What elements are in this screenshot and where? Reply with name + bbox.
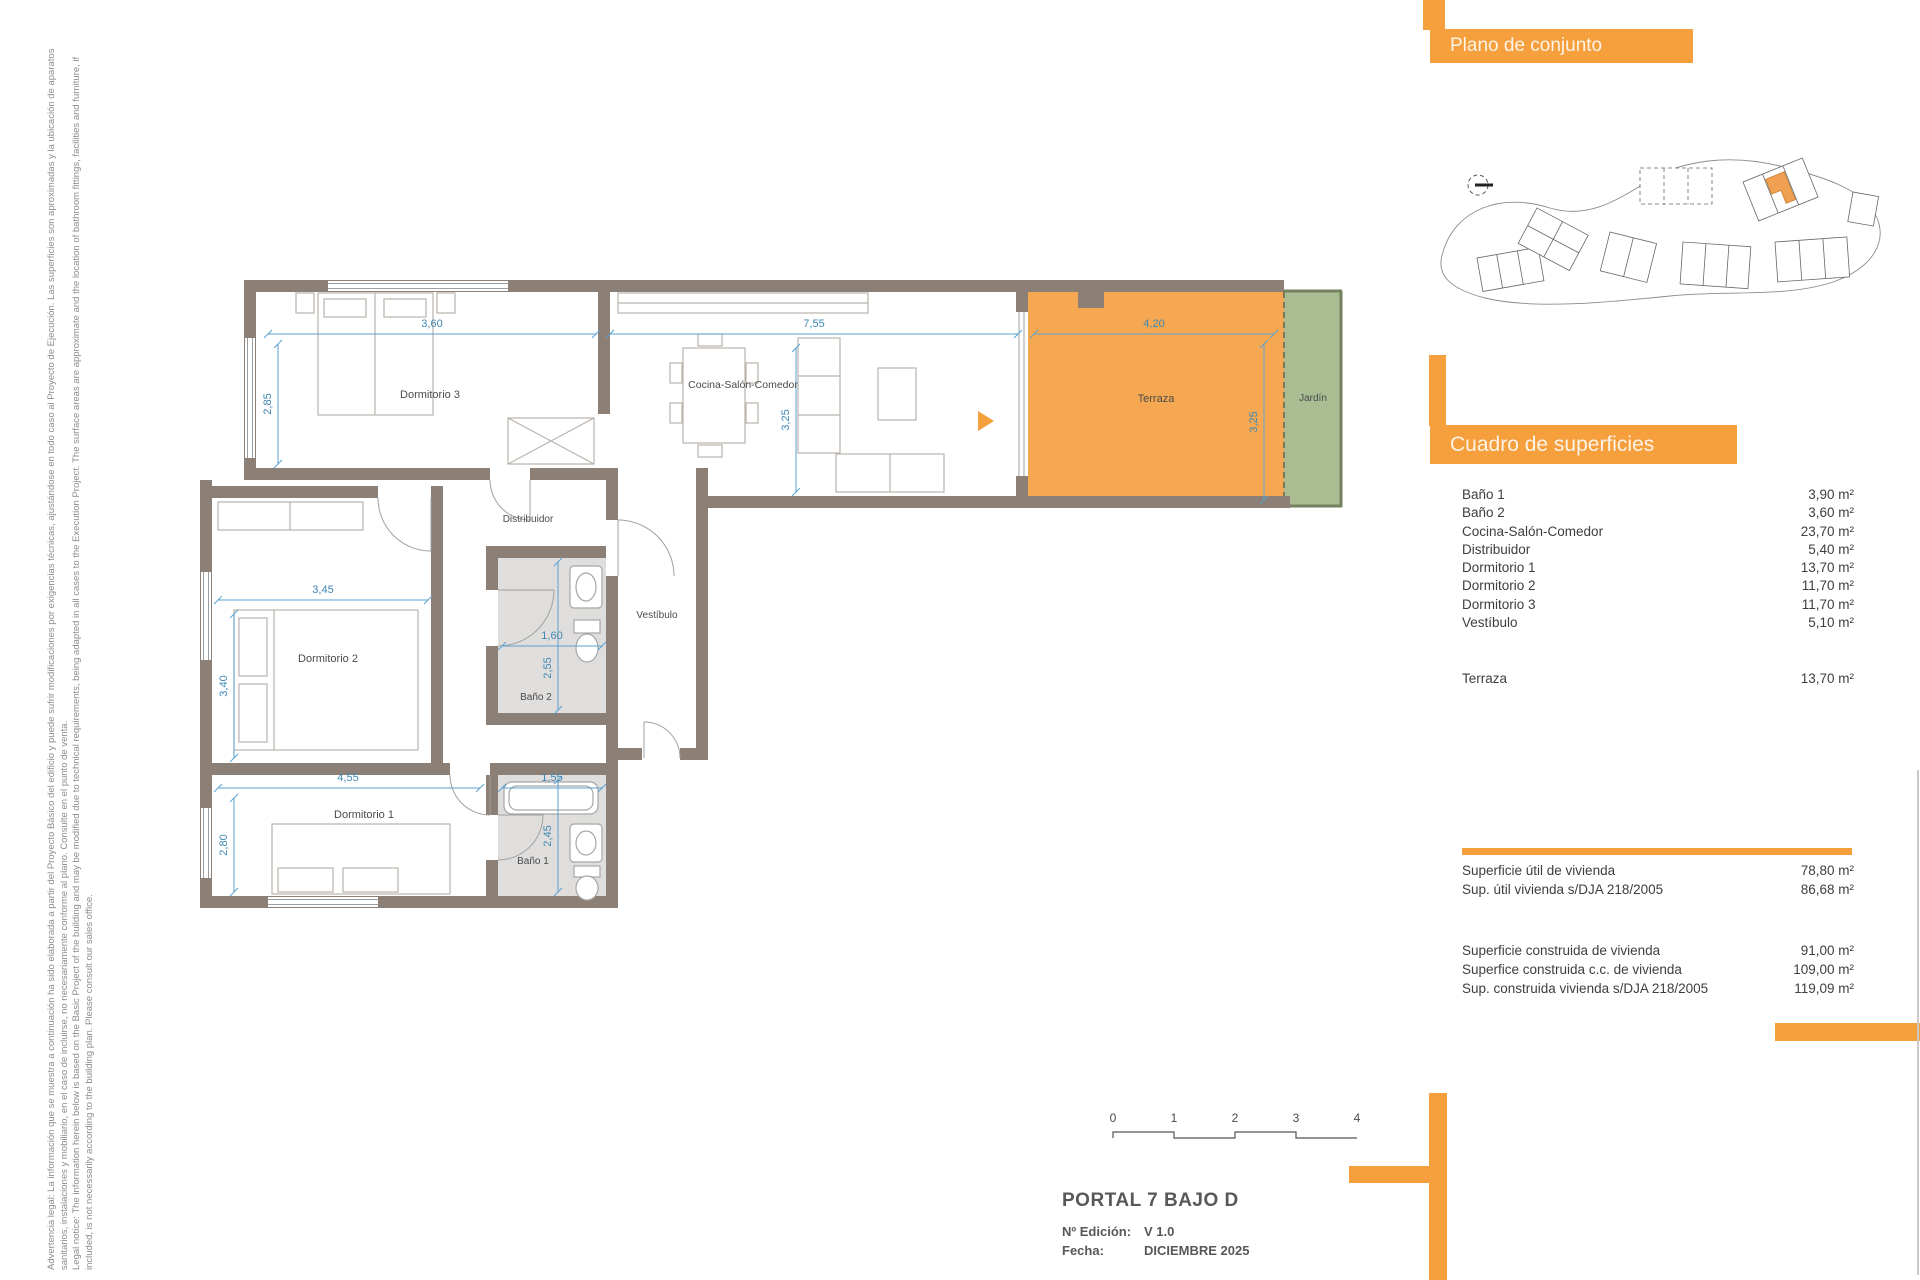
disclaimer-line-en-1: Legal notice: The information herein bel…	[71, 8, 84, 1270]
dim-dorm2-width: 3,45	[312, 584, 333, 596]
decoration-right-edge-line	[1917, 770, 1919, 1275]
row-value: 23,70 m²	[1801, 523, 1854, 541]
row-value: 13,70 m²	[1801, 559, 1854, 577]
entrance-marker-icon	[978, 411, 994, 431]
row-label: Baño 1	[1462, 486, 1505, 504]
site-buildings	[1477, 158, 1879, 291]
building-cluster	[1640, 168, 1712, 204]
table-row: Sup. útil vivienda s/DJA 218/2005 86,68 …	[1462, 880, 1854, 899]
building-cluster	[1680, 242, 1751, 289]
closet-dorm3-icon	[508, 418, 594, 464]
scale-bar-line	[1113, 1132, 1357, 1138]
row-value: 5,10 m²	[1808, 614, 1854, 632]
disclaimer-line-es-2: sanitarios, instalaciones y mobiliario, …	[59, 8, 72, 1270]
scale-tick-4: 4	[1354, 1111, 1361, 1125]
surfaces-table-terraza: Terraza 13,70 m²	[1462, 670, 1854, 688]
dim-salon-width: 7,55	[803, 318, 824, 330]
surfaces-panel-title-text: Cuadro de superficies	[1450, 433, 1654, 457]
edition-row: Nº Edición: V 1.0	[1062, 1222, 1382, 1241]
row-value: 13,70 m²	[1801, 670, 1854, 688]
table-row: Superficie útil de vivienda 78,80 m²	[1462, 861, 1854, 880]
toilet-bano2-icon	[574, 620, 600, 662]
room-label-dormitorio1: Dormitorio 1	[334, 809, 394, 821]
table-row: Vestíbulo 5,10 m²	[1462, 614, 1854, 632]
room-label-dormitorio2: Dormitorio 2	[298, 653, 358, 665]
dim-dorm1-height: 2,80	[218, 834, 230, 855]
row-value: 86,68 m²	[1801, 880, 1854, 899]
wardrobe-dorm2-icon	[218, 502, 363, 530]
site-plan	[1425, 140, 1905, 315]
totals-divider-bar	[1462, 848, 1852, 855]
table-row: Distribuidor 5,40 m²	[1462, 541, 1854, 559]
date-label: Fecha:	[1062, 1241, 1144, 1260]
row-label: Terraza	[1462, 670, 1507, 688]
dim-terraza-height: 3,25	[1248, 411, 1260, 432]
row-value: 5,40 m²	[1808, 541, 1854, 559]
surfaces-panel-accent-bar	[1429, 355, 1446, 426]
room-label-terraza: Terraza	[1138, 393, 1176, 405]
room-label-dormitorio3: Dormitorio 3	[400, 389, 460, 401]
bed-dorm1-icon	[272, 824, 450, 894]
row-label: Superficie construida de vivienda	[1462, 941, 1660, 960]
dim-bano1-width: 1,55	[541, 772, 562, 784]
scale-tick-0: 0	[1110, 1111, 1117, 1125]
dim-dorm2-height: 3,40	[218, 675, 230, 696]
row-value: 11,70 m²	[1802, 577, 1854, 595]
scale-bar: 0 1 2 3 4	[1100, 1108, 1380, 1148]
row-label: Distribuidor	[1462, 541, 1530, 559]
bathtub-bano1-icon	[504, 782, 598, 814]
table-row: Sup. construida vivienda s/DJA 218/2005 …	[1462, 979, 1854, 998]
tv-unit-icon	[878, 368, 916, 420]
edition-label: Nº Edición:	[1062, 1222, 1144, 1241]
disclaimer-line-es-1: Advertencia legal: La información que se…	[46, 8, 59, 1270]
disclaimer-line-en-2: included, is not necessarily according t…	[84, 8, 97, 1270]
table-row: Baño 2 3,60 m²	[1462, 504, 1854, 522]
table-row: Baño 1 3,90 m²	[1462, 486, 1854, 504]
room-label-cocina: Cocina-Salón-Comedor	[688, 379, 798, 391]
table-row: Superficie construida de vivienda 91,00 …	[1462, 941, 1854, 960]
scale-tick-1: 1	[1171, 1111, 1178, 1125]
edition-value: V 1.0	[1144, 1222, 1174, 1241]
floor-fills	[498, 292, 1342, 896]
dim-salon-height: 3,25	[780, 409, 792, 430]
row-label: Baño 2	[1462, 504, 1505, 522]
title-block: PORTAL 7 BAJO D Nº Edición: V 1.0 Fecha:…	[1062, 1190, 1382, 1260]
building-cluster	[1848, 192, 1879, 226]
building-cluster	[1775, 237, 1850, 282]
table-row: Dormitorio 3 11,70 m²	[1462, 596, 1854, 614]
decoration-bottom-bar	[1775, 1023, 1920, 1041]
table-row: Cocina-Salón-Comedor 23,70 m²	[1462, 523, 1854, 541]
table-row: Dormitorio 2 11,70 m²	[1462, 577, 1854, 595]
row-label: Dormitorio 2	[1462, 577, 1536, 595]
bed-dorm2-icon	[234, 610, 418, 750]
kitchen-counter-icon	[618, 293, 868, 313]
room-label-jardin: Jardín	[1299, 393, 1327, 404]
row-value: 109,00 m²	[1793, 960, 1854, 979]
row-label: Superficie útil de vivienda	[1462, 861, 1615, 880]
dim-dorm3-height: 2,85	[262, 393, 274, 414]
row-value: 78,80 m²	[1801, 861, 1854, 880]
table-row: Terraza 13,70 m²	[1462, 670, 1854, 688]
decoration-vertical-bar	[1429, 1093, 1447, 1280]
table-row: Superfice construida c.c. de vivienda 10…	[1462, 960, 1854, 979]
row-label: Vestíbulo	[1462, 614, 1518, 632]
sink-bano2-icon	[570, 566, 602, 608]
dim-bano2-height: 2,55	[542, 657, 554, 678]
decoration-horizontal-arm	[1349, 1166, 1429, 1183]
row-label: Superfice construida c.c. de vivienda	[1462, 960, 1682, 979]
toilet-bano1-icon	[574, 866, 600, 900]
totals-useful-area: Superficie útil de vivienda 78,80 m² Sup…	[1462, 861, 1854, 899]
sink-bano1-icon	[570, 824, 602, 862]
surfaces-panel-title: Cuadro de superficies	[1430, 425, 1737, 464]
site-panel-title: Plano de conjunto	[1430, 29, 1693, 63]
legal-disclaimer: Advertencia legal: La información que se…	[46, 8, 102, 1272]
totals-built-area: Superficie construida de vivienda 91,00 …	[1462, 941, 1854, 998]
row-value: 11,70 m²	[1802, 596, 1854, 614]
date-row: Fecha: DICIEMBRE 2025	[1062, 1241, 1382, 1260]
row-label: Sup. construida vivienda s/DJA 218/2005	[1462, 979, 1708, 998]
row-label: Sup. útil vivienda s/DJA 218/2005	[1462, 880, 1663, 899]
site-panel-title-text: Plano de conjunto	[1450, 35, 1602, 57]
sofa-icon	[798, 338, 840, 453]
room-label-vestibulo: Vestíbulo	[636, 610, 678, 621]
plan-title: PORTAL 7 BAJO D	[1062, 1190, 1382, 1212]
dim-dorm1-width: 4,55	[337, 772, 358, 784]
building-cluster	[1600, 232, 1656, 282]
row-value: 3,90 m²	[1808, 486, 1854, 504]
building-cluster	[1477, 247, 1544, 291]
dim-bano2-width: 1,60	[541, 630, 562, 642]
scale-tick-3: 3	[1293, 1111, 1300, 1125]
floor-plan: 3,60 7,55 4,20 3,45 1,60 4,55 1,55 2,85 …	[178, 268, 1358, 916]
row-value: 91,00 m²	[1801, 941, 1854, 960]
room-label-bano1: Baño 1	[517, 856, 549, 867]
row-label: Dormitorio 1	[1462, 559, 1536, 577]
row-value: 119,09 m²	[1794, 979, 1854, 998]
dining-table-icon	[670, 334, 758, 457]
row-label: Dormitorio 3	[1462, 596, 1536, 614]
row-value: 3,60 m²	[1808, 504, 1854, 522]
scale-bar-ticks: 0 1 2 3 4	[1110, 1111, 1361, 1125]
row-label: Cocina-Salón-Comedor	[1462, 523, 1603, 541]
north-compass-icon	[1468, 175, 1493, 195]
table-row: Dormitorio 1 13,70 m²	[1462, 559, 1854, 577]
sideboard-icon	[836, 454, 944, 492]
dim-terraza-width: 4,20	[1143, 318, 1164, 330]
surfaces-table: Baño 1 3,90 m² Baño 2 3,60 m² Cocina-Sal…	[1462, 486, 1854, 632]
date-value: DICIEMBRE 2025	[1144, 1241, 1249, 1260]
scale-tick-2: 2	[1232, 1111, 1239, 1125]
dim-bano1-height: 2,45	[542, 825, 554, 846]
room-label-bano2: Baño 2	[520, 692, 552, 703]
site-panel-accent-bar	[1423, 0, 1445, 30]
building-cluster-highlighted	[1743, 158, 1818, 221]
dim-dorm3-width: 3,60	[421, 318, 442, 330]
room-label-distribuidor: Distribuidor	[503, 514, 554, 525]
